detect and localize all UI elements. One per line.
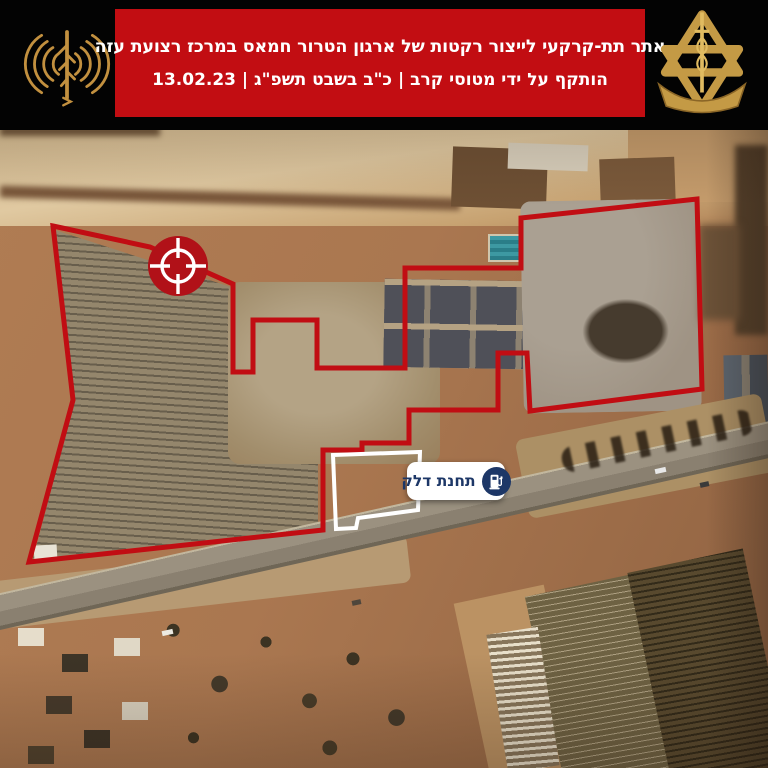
fuel-pump-icon <box>482 467 511 496</box>
infographic: אתר תת-קרקעי לייצור רקטות של ארגון הטרור… <box>0 0 768 768</box>
title-line-1: אתר תת-קרקעי לייצור רקטות של ארגון הטרור… <box>95 37 666 57</box>
target-area-outline <box>29 199 702 562</box>
radio-waves-branch-emblem-icon <box>20 14 114 114</box>
satellite-image: תחנת דלק <box>0 130 768 768</box>
idf-emblem-icon <box>644 4 760 124</box>
title-banner: אתר תת-קרקעי לייצור רקטות של ארגון הטרור… <box>115 9 645 117</box>
title-line-2: הותקף על ידי מטוסי קרב | כ"ב בשבט תשפ"ג … <box>152 70 608 90</box>
annotation-overlay <box>0 130 768 768</box>
gas-station-label: תחנת דלק <box>407 462 505 500</box>
gas-station-label-text: תחנת דלק <box>401 472 475 490</box>
header-banner: אתר תת-קרקעי לייצור רקטות של ארגון הטרור… <box>0 0 768 130</box>
target-crosshair-icon <box>148 236 208 296</box>
